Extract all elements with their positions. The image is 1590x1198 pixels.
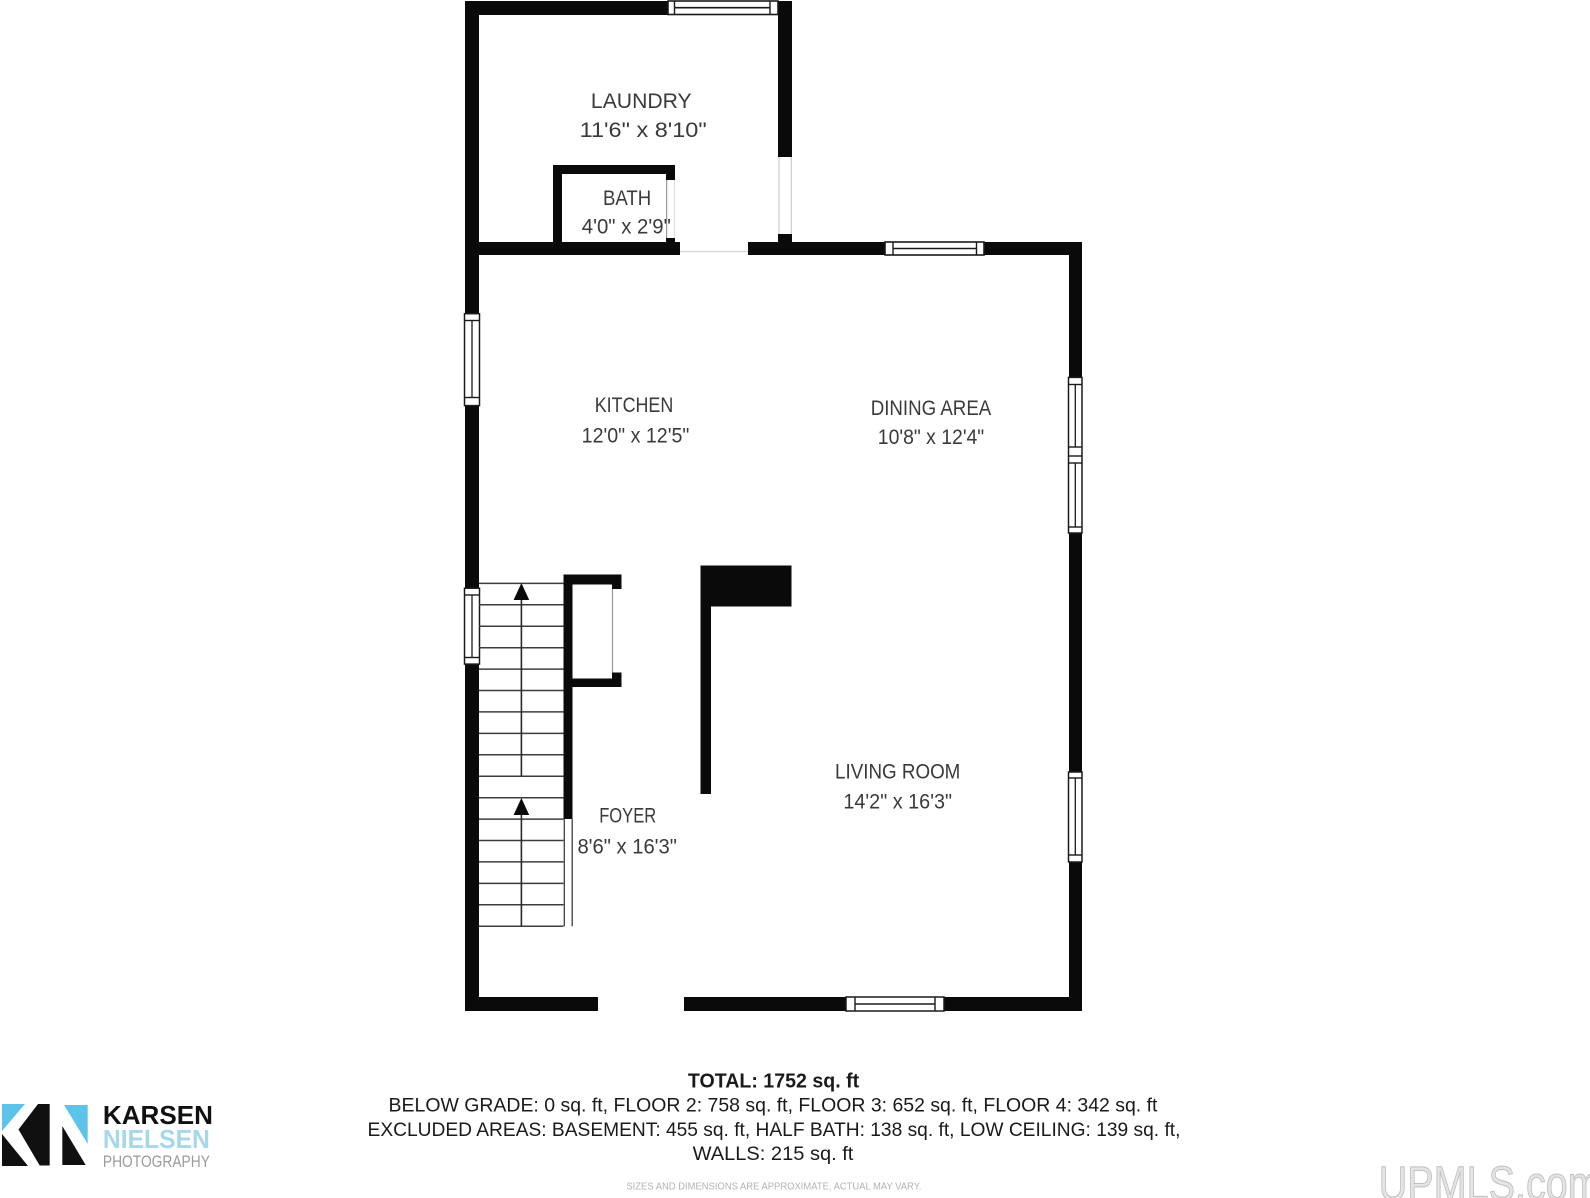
- svg-text:FOYER: FOYER: [599, 805, 656, 828]
- svg-text:LIVING ROOM: LIVING ROOM: [835, 761, 960, 784]
- svg-text:WALLS: 215 sq. ft: WALLS: 215 sq. ft: [693, 1143, 854, 1165]
- svg-text:EXCLUDED AREAS: BASEMENT: 455: EXCLUDED AREAS: BASEMENT: 455 sq. ft, HA…: [368, 1119, 1181, 1141]
- svg-text:14'2" x 16'3": 14'2" x 16'3": [843, 791, 952, 814]
- svg-text:KITCHEN: KITCHEN: [595, 394, 674, 417]
- svg-text:10'8" x 12'4": 10'8" x 12'4": [878, 426, 984, 449]
- svg-text:BATH: BATH: [603, 187, 651, 210]
- svg-text:NIELSEN: NIELSEN: [103, 1124, 210, 1154]
- svg-text:LAUNDRY: LAUNDRY: [591, 90, 692, 113]
- svg-text:DINING AREA: DINING AREA: [871, 397, 992, 420]
- svg-text:4'0" x 2'9": 4'0" x 2'9": [582, 215, 671, 238]
- svg-text:TOTAL: 1752 sq. ft: TOTAL: 1752 sq. ft: [688, 1071, 860, 1093]
- svg-text:8'6" x 16'3": 8'6" x 16'3": [577, 836, 677, 859]
- svg-text:BELOW GRADE: 0 sq. ft, FLOOR 2: BELOW GRADE: 0 sq. ft, FLOOR 2: 758 sq. …: [389, 1094, 1158, 1116]
- svg-text:SIZES AND DIMENSIONS ARE APPRO: SIZES AND DIMENSIONS ARE APPROXIMATE, AC…: [626, 1181, 921, 1193]
- svg-text:PHOTOGRAPHY: PHOTOGRAPHY: [103, 1152, 210, 1171]
- svg-text:11'6" x 8'10": 11'6" x 8'10": [580, 119, 707, 142]
- svg-text:12'0" x 12'5": 12'0" x 12'5": [582, 424, 690, 447]
- svg-text:UPMLS.com: UPMLS.com: [1379, 1158, 1590, 1198]
